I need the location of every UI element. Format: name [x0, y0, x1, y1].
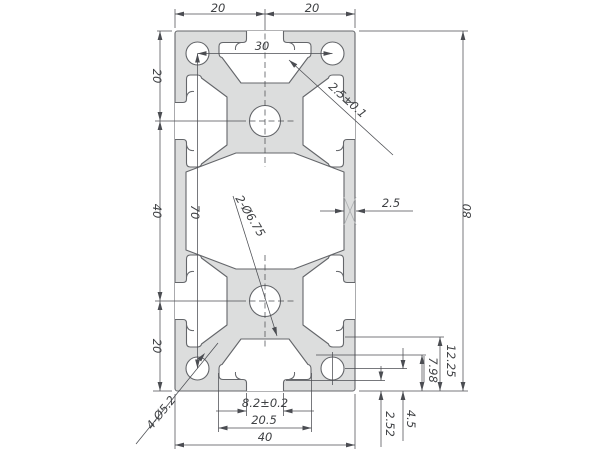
dim-left-40-label: 40 [150, 204, 164, 219]
dim-7-98-arrow [420, 382, 425, 391]
dim-70-label: 70 [188, 205, 202, 220]
dim-2-52-arrow [379, 391, 384, 400]
dim-top-left-20-arrow [256, 12, 265, 17]
dim-top-left-20-arrow [175, 12, 184, 17]
dim-left-20-top-arrow [158, 31, 163, 40]
dim-12-25-arrow [438, 337, 443, 346]
dim-slot-cavity-label: 20.5 [251, 413, 277, 427]
dim-wall-2-5-arrow [356, 209, 365, 214]
dim-12-25-arrow [438, 382, 443, 391]
dim-height-80-arrow [461, 31, 466, 40]
drawing-canvas: 20203020402070808.2±0.220.54012.257.984.… [0, 0, 600, 450]
dim-7-98-label: 7.98 [426, 357, 440, 383]
dim-slot-cavity-arrow [303, 426, 312, 431]
dim-left-20-bottom-label: 20 [150, 339, 164, 354]
dim-left-20-top-arrow [158, 112, 163, 121]
dim-height-80-label: 80 [460, 204, 474, 219]
dim-width-40-label: 40 [258, 430, 273, 444]
leader-4-holes-label: 4-Ø5.2 [143, 393, 178, 432]
dim-slot-cavity-arrow [219, 426, 228, 431]
dim-left-20-top-label: 20 [150, 69, 164, 84]
dim-left-40-arrow [158, 121, 163, 130]
dim-2-52-arrow [379, 372, 384, 381]
dim-top-right-20-arrow [265, 12, 274, 17]
dim-left-20-bottom-arrow [158, 301, 163, 310]
dim-top-right-20-label: 20 [305, 1, 320, 15]
dim-top-right-20-arrow [346, 12, 355, 17]
dim-height-80-arrow [461, 382, 466, 391]
dim-4-5-label: 4.5 [404, 410, 418, 428]
dim-slot-mouth-label: 8.2±0.2 [242, 396, 288, 410]
dim-12-25-label: 12.25 [444, 345, 458, 378]
dim-4-5-arrow [401, 360, 406, 369]
extrusion-cross-section-drawing: 20203020402070808.2±0.220.54012.257.984.… [0, 0, 600, 450]
dim-top-left-20-label: 20 [211, 1, 226, 15]
dim-wall-2-5-label: 2.5 [382, 196, 400, 210]
dim-left-40-arrow [158, 292, 163, 301]
dim-4-5-arrow [401, 391, 406, 400]
dim-left-20-bottom-arrow [158, 382, 163, 391]
dim-hole-spacing-30-label: 30 [255, 39, 270, 53]
dim-width-40-arrow [175, 443, 184, 448]
dim-2-52-label: 2.52 [383, 411, 397, 437]
dim-width-40-arrow [346, 443, 355, 448]
